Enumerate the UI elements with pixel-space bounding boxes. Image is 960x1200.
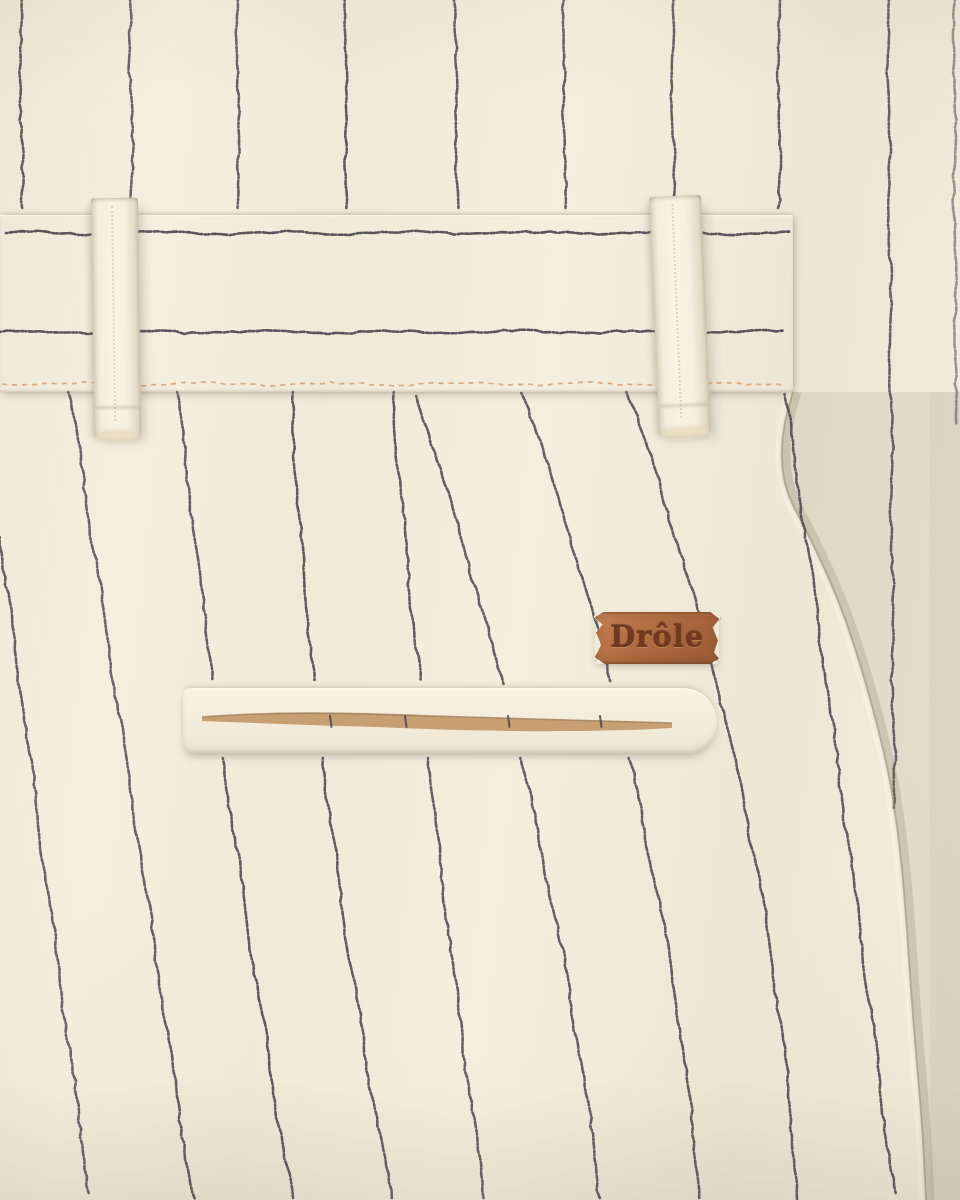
pinstripe-top [671, 0, 676, 208]
pinstripe-body [223, 758, 293, 1198]
pinstripe-body [292, 392, 314, 680]
pinstripe-top [454, 0, 459, 208]
pinstripe-body [322, 758, 391, 1198]
pinstripe-top [19, 0, 23, 208]
pinstripe-top [128, 0, 133, 208]
brand-label: Drôle [595, 612, 719, 664]
pinstripe-body [520, 758, 600, 1198]
pinstripe-body [626, 392, 797, 1200]
pinstripe-body [177, 392, 213, 680]
belt-loop-right [649, 195, 711, 435]
belt-loop-left [91, 198, 141, 438]
pinstripe-body [416, 396, 503, 684]
belt-loop-stitch-line [111, 206, 116, 421]
pinstripe-body [428, 758, 484, 1198]
pinstripe-top [236, 0, 240, 208]
pinstripe-top [344, 0, 347, 208]
pinstripe-underlayer [953, 0, 958, 424]
pinstripe-body [629, 758, 700, 1198]
pinstripe-top [777, 0, 781, 208]
pinstripe-top [562, 0, 567, 208]
pinstripe-body [393, 392, 421, 680]
trousers-photo: Drôle [0, 0, 960, 1200]
pinstripe-body [68, 392, 195, 1200]
pocket-opening-svg [183, 688, 717, 753]
belt-loop-fold-crease [660, 403, 708, 408]
pinstripe-body [0, 537, 89, 1193]
belt-loop-fold-crease [96, 406, 139, 410]
underlayer-shade-strip [930, 392, 960, 1200]
brand-label-text: Drôle [610, 623, 704, 654]
belt-loop-stitch-line [671, 204, 682, 418]
pinstripe-field [0, 0, 960, 1200]
leather-patch: Drôle [595, 612, 719, 664]
back-pocket-welt [183, 688, 717, 753]
